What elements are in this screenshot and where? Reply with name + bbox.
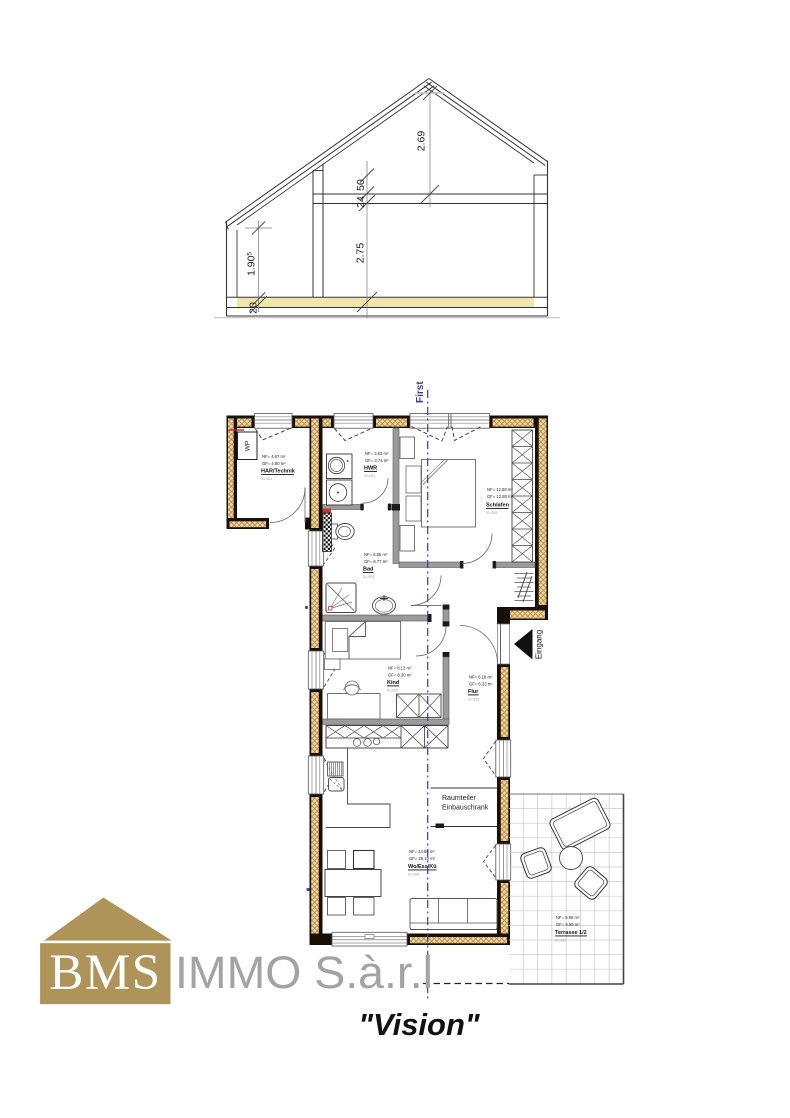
svg-text:Bad: Bad xyxy=(363,567,373,573)
svg-text:BMS: BMS xyxy=(49,945,161,1001)
svg-text:01-001: 01-001 xyxy=(261,477,272,481)
svg-text:50: 50 xyxy=(355,179,367,191)
svg-text:20: 20 xyxy=(248,302,260,314)
svg-text:First: First xyxy=(415,381,426,403)
svg-text:NF= 6.18 m²: NF= 6.18 m² xyxy=(469,675,493,680)
svg-text:Einbauschrank: Einbauschrank xyxy=(442,805,489,812)
svg-text:GF= 6.77 m²: GF= 6.77 m² xyxy=(364,559,388,564)
svg-text:NF= 3.63 m²: NF= 3.63 m² xyxy=(365,451,389,456)
svg-text:WP: WP xyxy=(245,441,252,451)
svg-text:01-005: 01-005 xyxy=(468,697,479,701)
svg-text:GF= 4.80 m²: GF= 4.80 m² xyxy=(262,461,286,466)
svg-text:GF= 9.99 m²: GF= 9.99 m² xyxy=(556,922,580,927)
svg-text:01-001: 01-001 xyxy=(364,474,375,478)
svg-text:"Vision": "Vision" xyxy=(358,1007,481,1042)
svg-text:Terrasse 1/2: Terrasse 1/2 xyxy=(555,930,587,936)
svg-text:Raumteiler: Raumteiler xyxy=(442,795,477,802)
svg-text:Eingang: Eingang xyxy=(535,630,544,659)
svg-text:GF= 25.10 m²: GF= 25.10 m² xyxy=(409,856,436,861)
svg-text:Flur: Flur xyxy=(468,689,479,695)
svg-text:HAR/Technik: HAR/Technik xyxy=(261,469,296,475)
svg-text:GF= 3.74 m²: GF= 3.74 m² xyxy=(365,458,389,463)
svg-text:GF= 6.33 m²: GF= 6.33 m² xyxy=(469,681,493,686)
svg-text:NF= 12.58 m²: NF= 12.58 m² xyxy=(487,487,513,492)
svg-text:01-008: 01-008 xyxy=(486,511,497,515)
svg-text:IMMO S.à.r.l: IMMO S.à.r.l xyxy=(175,947,433,998)
svg-text:2.69: 2.69 xyxy=(416,131,428,152)
svg-text:01-002: 01-002 xyxy=(387,688,398,692)
svg-text:GF= 8.30 m²: GF= 8.30 m² xyxy=(388,672,412,677)
svg-text:NF= 24.88 m²: NF= 24.88 m² xyxy=(409,849,435,854)
svg-text:1.905: 1.905 xyxy=(246,252,258,276)
svg-text:24: 24 xyxy=(355,196,367,208)
svg-text:Kind: Kind xyxy=(387,680,399,686)
svg-text:Schlafen: Schlafen xyxy=(486,503,510,509)
svg-text:NF= 6.55 m²: NF= 6.55 m² xyxy=(364,552,388,557)
svg-text:2.75: 2.75 xyxy=(355,243,367,264)
svg-text:Wo/Ess/Kü: Wo/Ess/Kü xyxy=(408,864,437,870)
svg-text:01-003: 01-003 xyxy=(363,575,374,579)
svg-text:NF= 9.99 m²: NF= 9.99 m² xyxy=(556,915,580,920)
svg-text:NF= 8.13 m²: NF= 8.13 m² xyxy=(388,666,412,671)
svg-text:HWR: HWR xyxy=(364,466,377,472)
svg-text:01-002: 01-002 xyxy=(555,938,566,942)
svg-text:01-004: 01-004 xyxy=(408,872,419,876)
svg-text:NF= 4.67 m²: NF= 4.67 m² xyxy=(262,454,286,459)
svg-text:GF= 12.80 m²: GF= 12.80 m² xyxy=(487,494,514,499)
